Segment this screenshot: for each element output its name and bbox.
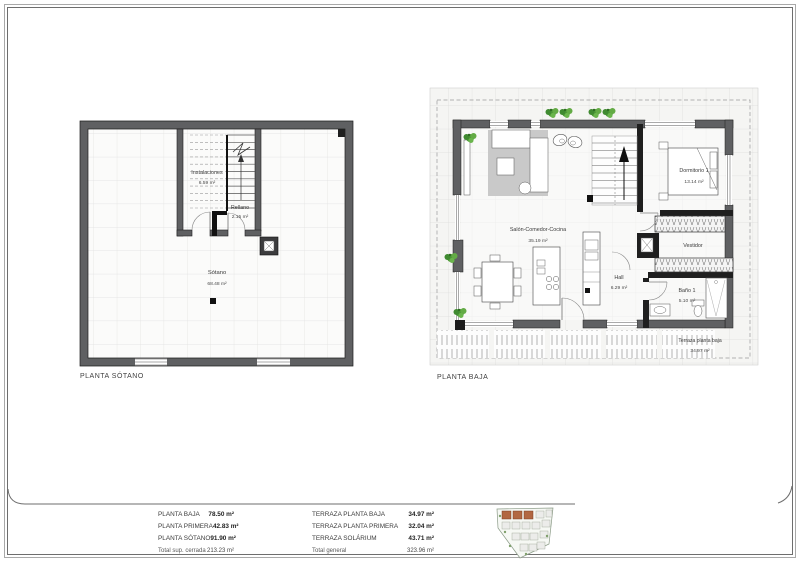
column xyxy=(210,298,216,304)
row-value: 34.97 m² xyxy=(408,511,434,518)
room-label-rellano: Rellano xyxy=(231,205,249,211)
row-label: TERRAZA SOLÁRIUM xyxy=(312,535,377,542)
terrace-decking xyxy=(437,330,715,358)
room-label-sotano: Sótano xyxy=(208,270,226,276)
room-label-salon: Salón-Comedor-Cocina xyxy=(510,227,566,233)
wardrobe xyxy=(655,258,733,272)
row-value: 323.96 m² xyxy=(407,548,434,554)
table-row: TERRAZA PLANTA PRIMERA 32.04 m² xyxy=(312,520,434,532)
row-value: 32.04 m² xyxy=(408,523,434,530)
row-value: 78.50 m² xyxy=(208,511,234,518)
room-area-salon: 35.19 m² xyxy=(528,238,548,244)
table-row: TERRAZA PLANTA BAJA 34.97 m² xyxy=(312,508,434,520)
site-plan-thumbnail xyxy=(490,506,560,560)
basement-floor-grid xyxy=(88,129,345,358)
table-row: TERRAZA SOLÁRIUM 43.71 m² xyxy=(312,532,434,544)
row-label: Total general xyxy=(312,548,346,554)
room-area-instalaciones: 6.59 m² xyxy=(199,180,216,186)
drawing-sheet: Instalaciones 6.59 m² Rellano 2.15 m² Só… xyxy=(0,0,800,562)
row-label: TERRAZA PLANTA BAJA xyxy=(312,511,385,518)
corner-post xyxy=(455,320,465,330)
room-area-terraza: 34.97 m² xyxy=(690,348,710,354)
room-area-dormitorio: 13.14 m² xyxy=(684,179,704,185)
table-total-row: Total sup. cerrada 213.23 m² xyxy=(158,545,234,557)
downpipe xyxy=(338,129,345,137)
row-label: PLANTA PRIMERA xyxy=(158,523,213,530)
room-area-hall: 6.29 m² xyxy=(611,285,628,291)
room-label-dormitorio: Dormitorio 1 xyxy=(679,168,708,174)
room-label-instalaciones: Instalaciones xyxy=(191,170,223,176)
row-value: 43.71 m² xyxy=(408,535,434,542)
sink xyxy=(650,304,670,316)
staircase xyxy=(587,136,637,205)
ground-plan-title: PLANTA BAJA xyxy=(437,374,488,381)
room-label-terraza: Terraza planta baja xyxy=(678,338,721,344)
table-row: PLANTA SÓTANO 91.90 m² xyxy=(158,532,234,544)
table-row: PLANTA PRIMERA 42.83 m² xyxy=(158,520,234,532)
row-label: Total sup. cerrada xyxy=(158,548,206,554)
room-label-vestidor: Vestidor xyxy=(683,243,703,249)
ground-floor-plan: Salón-Comedor-Cocina 35.19 m² Hall 6.29 … xyxy=(425,82,770,372)
areas-table: PLANTA BAJA 78.50 m² PLANTA PRIMERA 42.8… xyxy=(158,508,434,557)
room-label-bano: Baño 1 xyxy=(678,288,695,294)
row-value: 91.90 m² xyxy=(210,535,236,542)
room-area-bano: 5.10 m² xyxy=(679,298,696,304)
row-label: PLANTA BAJA xyxy=(158,511,200,518)
basement-plan-title: PLANTA SÓTANO xyxy=(80,373,144,380)
basement-window xyxy=(257,359,290,366)
room-area-rellano: 2.15 m² xyxy=(232,214,249,220)
table-row: PLANTA BAJA 78.50 m² xyxy=(158,508,234,520)
row-label: TERRAZA PLANTA PRIMERA xyxy=(312,523,398,530)
shaft-box xyxy=(260,237,278,255)
stair-parapet xyxy=(212,211,227,215)
basement-window xyxy=(135,359,167,366)
table-column-gap xyxy=(234,508,312,557)
room-label-hall: Hall xyxy=(614,275,623,281)
shaft-box xyxy=(641,238,653,252)
shower xyxy=(706,278,727,318)
room-area-sotano: 68.48 m² xyxy=(207,281,227,287)
wardrobe xyxy=(655,216,725,232)
row-value: 213.23 m² xyxy=(207,548,234,554)
row-label: PLANTA SÓTANO xyxy=(158,535,210,542)
kitchen-tall-unit xyxy=(583,232,600,305)
areas-table-closed: PLANTA BAJA 78.50 m² PLANTA PRIMERA 42.8… xyxy=(158,508,234,557)
basement-floor-plan: Instalaciones 6.59 m² Rellano 2.15 m² Só… xyxy=(70,110,370,380)
kitchen-island xyxy=(533,247,560,305)
highlighted-units xyxy=(502,511,533,519)
table-total-row: Total general 323.96 m² xyxy=(312,545,434,557)
areas-table-terraces: TERRAZA PLANTA BAJA 34.97 m² TERRAZA PLA… xyxy=(312,508,434,557)
